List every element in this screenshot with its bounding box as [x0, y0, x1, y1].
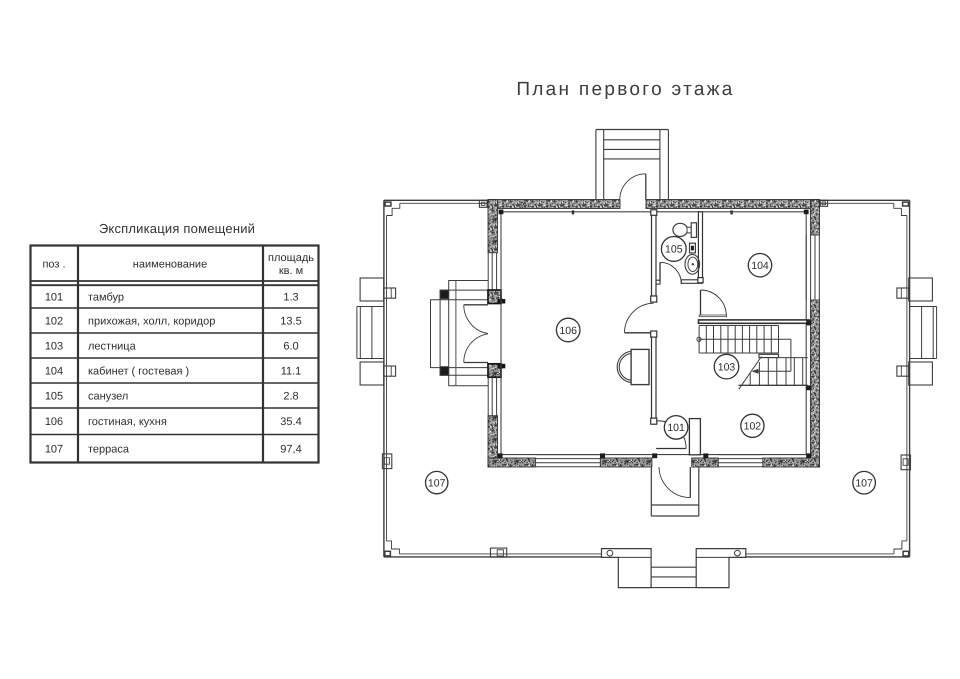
svg-text:102: 102	[744, 421, 762, 433]
svg-text:35.4: 35.4	[280, 416, 301, 428]
svg-text:6.0: 6.0	[283, 341, 298, 353]
svg-text:площадь: площадь	[268, 252, 314, 264]
svg-text:103: 103	[718, 361, 736, 373]
svg-text:санузел: санузел	[88, 391, 128, 403]
svg-text:104: 104	[45, 366, 63, 378]
svg-text:терраса: терраса	[88, 444, 130, 456]
svg-text:101: 101	[667, 422, 685, 434]
svg-text:План первого этажа: План первого этажа	[516, 79, 734, 100]
svg-text:1.3: 1.3	[283, 291, 298, 303]
svg-text:102: 102	[45, 316, 63, 328]
svg-text:гостиная, кухня: гостиная, кухня	[88, 416, 167, 428]
svg-text:поз .: поз .	[42, 259, 65, 271]
svg-text:Экспликация помещений: Экспликация помещений	[99, 221, 255, 236]
svg-text:тамбур: тамбур	[88, 291, 124, 303]
svg-text:107: 107	[855, 478, 873, 490]
svg-text:кв. м: кв. м	[279, 265, 303, 277]
svg-text:прихожая, холл, коридор: прихожая, холл, коридор	[88, 316, 215, 328]
svg-text:105: 105	[45, 391, 63, 403]
svg-text:104: 104	[751, 260, 769, 272]
svg-text:107: 107	[428, 477, 446, 489]
svg-text:105: 105	[665, 244, 683, 256]
svg-text:106: 106	[559, 325, 577, 337]
svg-text:2.8: 2.8	[283, 391, 298, 403]
svg-text:кабинет ( гостевая ): кабинет ( гостевая )	[88, 366, 189, 378]
svg-text:лестница: лестница	[88, 341, 137, 353]
svg-text:107: 107	[45, 444, 63, 456]
svg-text:101: 101	[45, 291, 63, 303]
svg-text:97,4: 97,4	[280, 444, 301, 456]
svg-text:103: 103	[45, 341, 63, 353]
svg-text:13.5: 13.5	[280, 316, 301, 328]
svg-text:наименование: наименование	[133, 259, 207, 271]
svg-text:11.1: 11.1	[281, 366, 302, 378]
svg-text:106: 106	[45, 416, 63, 428]
